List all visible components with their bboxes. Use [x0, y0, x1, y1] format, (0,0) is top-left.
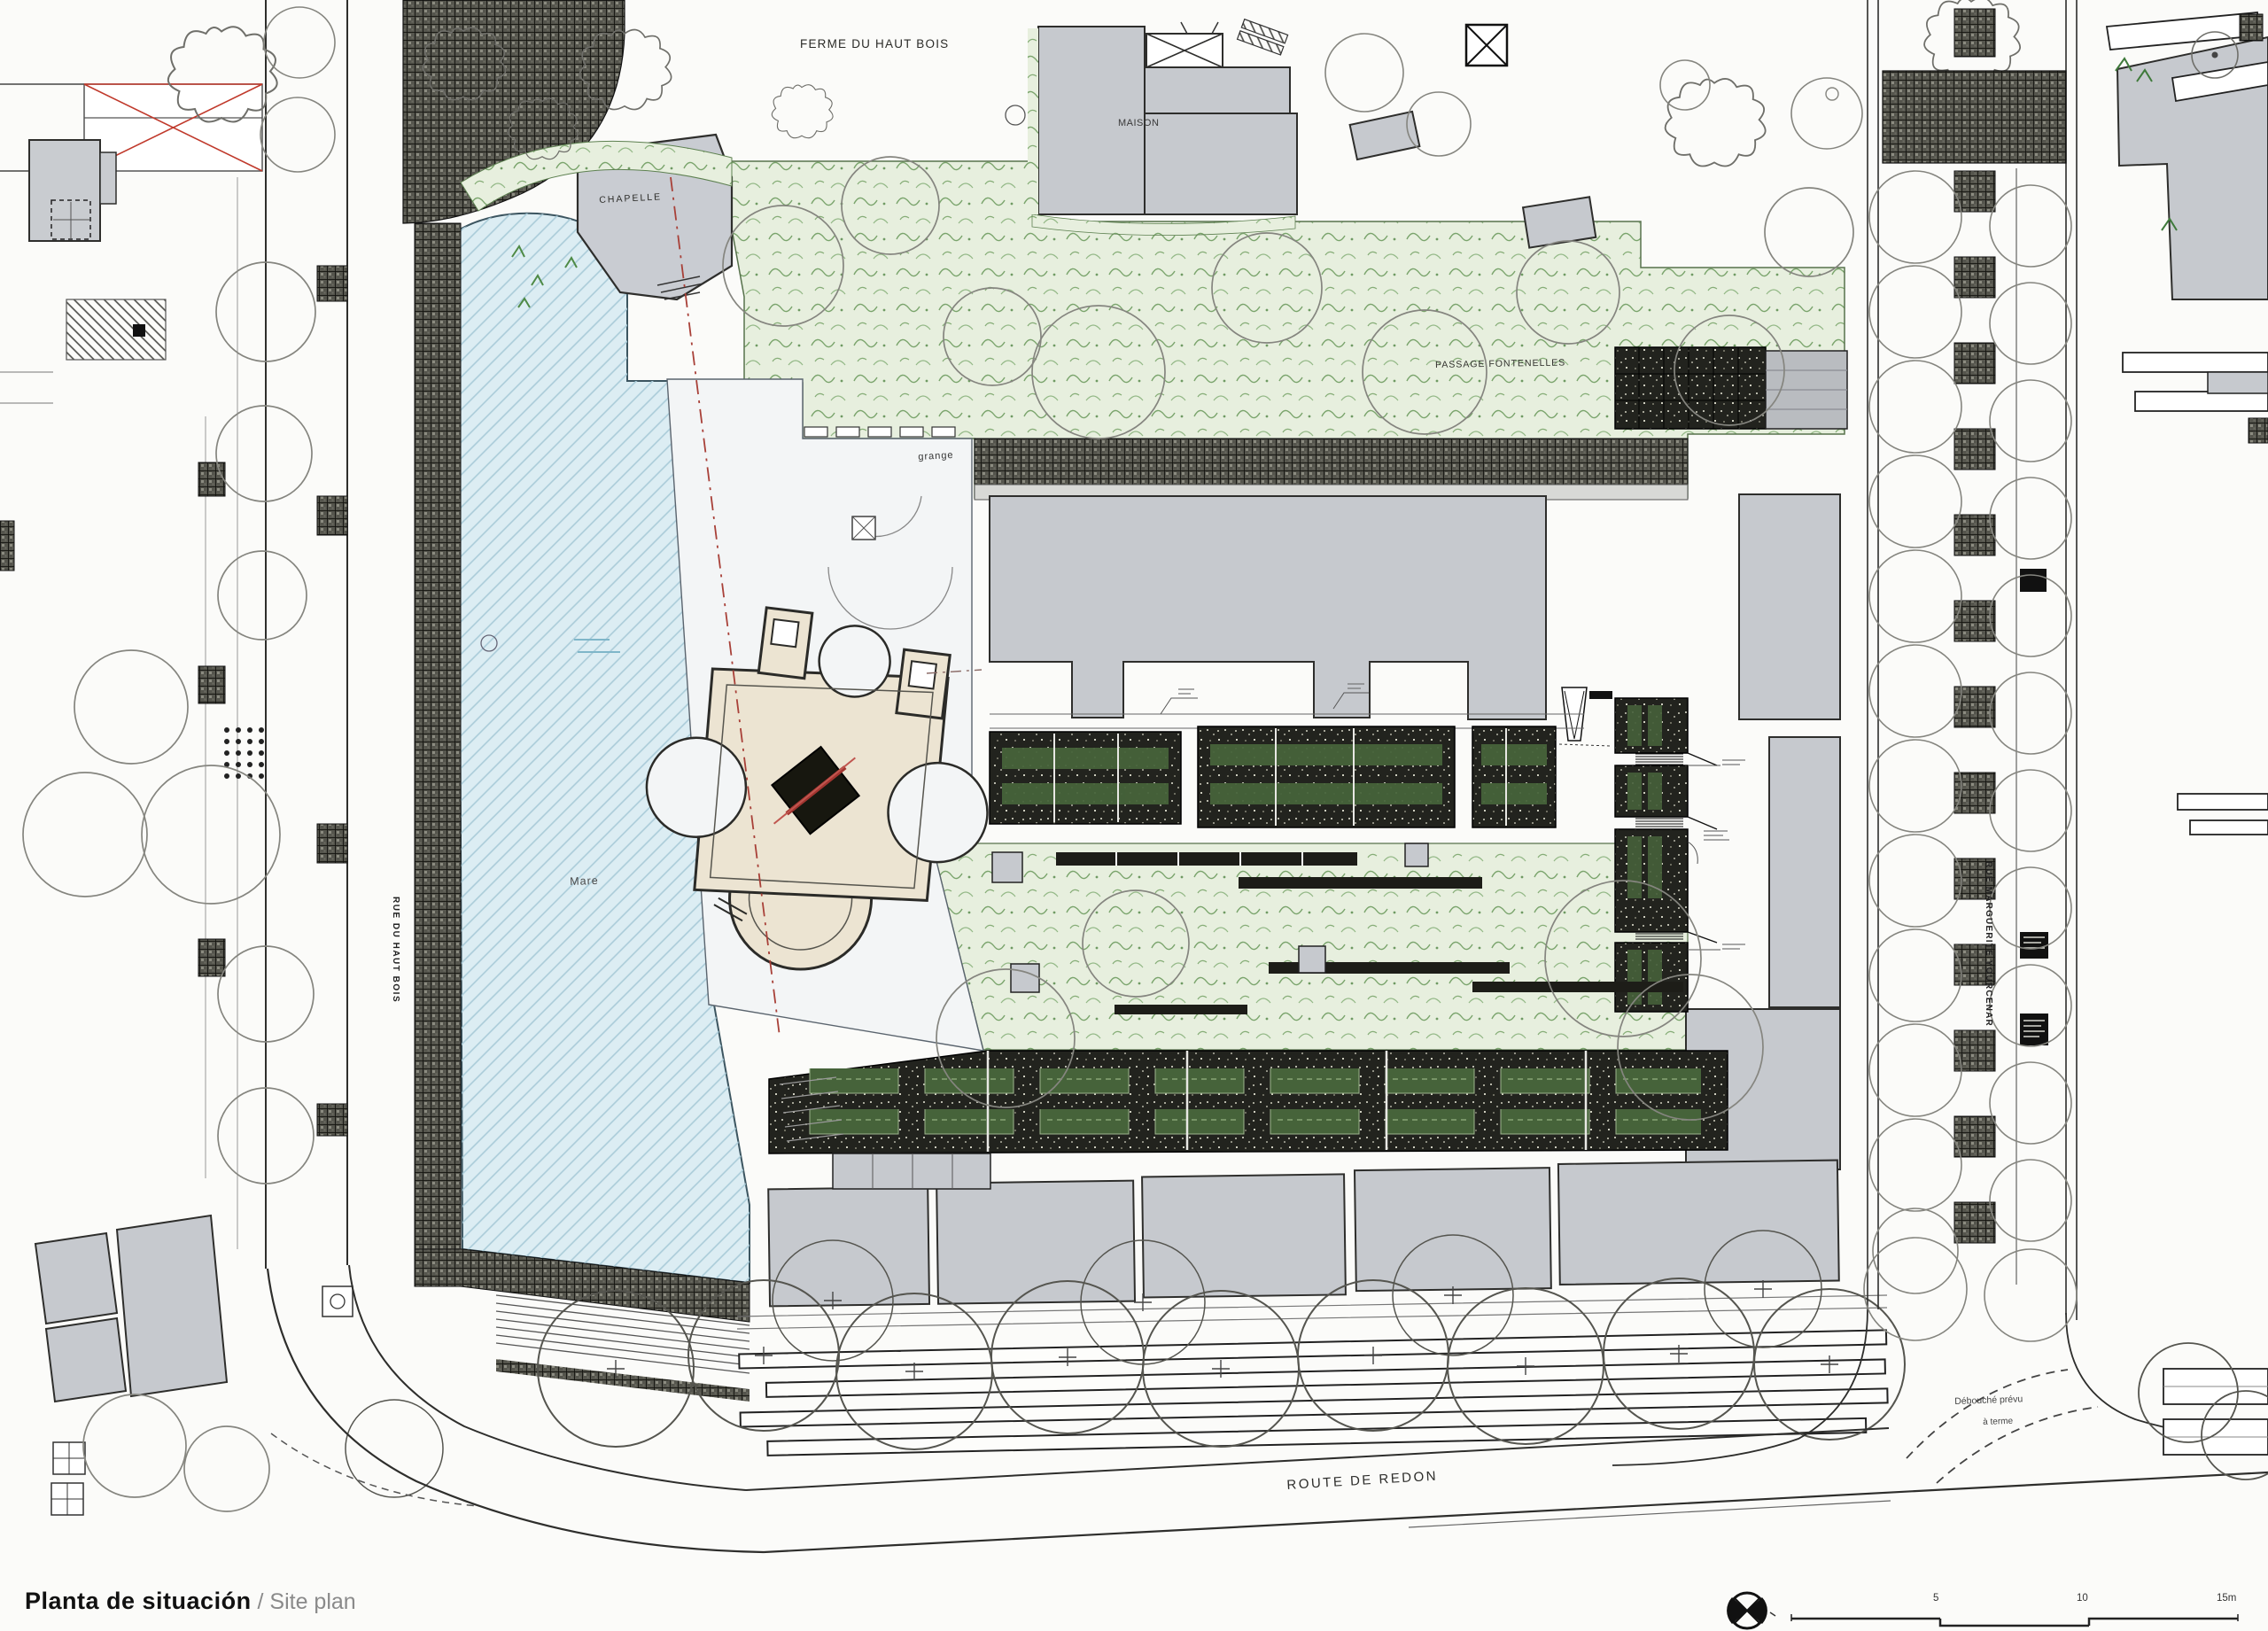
bus-shelter-icon: [2020, 569, 2048, 1045]
label-ferme-du-haut-bois: FERME DU HAUT BOIS: [800, 37, 949, 50]
north-arrow-icon: [1727, 1593, 1775, 1628]
drawing-title: Planta de situación / Site plan: [25, 1588, 356, 1615]
title-primary: Planta de situación: [25, 1588, 252, 1614]
pedestrian-crossing-dots: [224, 727, 264, 779]
crossed-square-marker: [1466, 25, 1507, 66]
shelter-grid-squares: [51, 1442, 85, 1515]
open-barn: [1146, 34, 1223, 67]
label-mare: Mare: [570, 874, 599, 888]
garden-column-east: [1615, 698, 1745, 1012]
median-tree-pits: [198, 266, 347, 1136]
title-separator: /: [252, 1589, 270, 1614]
scale-tick-10: 10: [2077, 1593, 2088, 1604]
scale-tick-15m: 15m: [2217, 1593, 2236, 1604]
pergola-block: [1615, 347, 1847, 429]
title-secondary: Site plan: [269, 1589, 355, 1614]
label-maison: MAISON: [1118, 118, 1159, 128]
scale-bar: [1791, 1614, 2238, 1626]
label-rue-du-haut-bois: RUE DU HAUT BOIS: [391, 897, 400, 1003]
label-debouche-line2: à terme: [1983, 1417, 2013, 1427]
southwest-building-cluster: [35, 1215, 227, 1402]
scale-tick-5: 5: [1933, 1593, 1938, 1604]
label-grange: grange: [918, 450, 954, 462]
site-plan-sheet: FERME DU HAUT BOIS MAISON CHAPELLE grang…: [0, 0, 2268, 1631]
ferme-buildings: [1006, 19, 1596, 248]
label-passage: PASSAGE FONTENELLES: [1435, 357, 1565, 370]
courtyard-ramp: [1559, 687, 1612, 746]
small-structure-row: [804, 427, 955, 437]
label-rue-marguerite: RUE MARGUERITE YOURCENAR: [1984, 861, 1993, 1027]
rue-marguerite-road: [1864, 0, 2077, 1341]
east-edge-buildings: [2107, 12, 2268, 1480]
site-plan-drawing: [0, 0, 2268, 1631]
west-edge-buildings: [0, 84, 353, 1515]
